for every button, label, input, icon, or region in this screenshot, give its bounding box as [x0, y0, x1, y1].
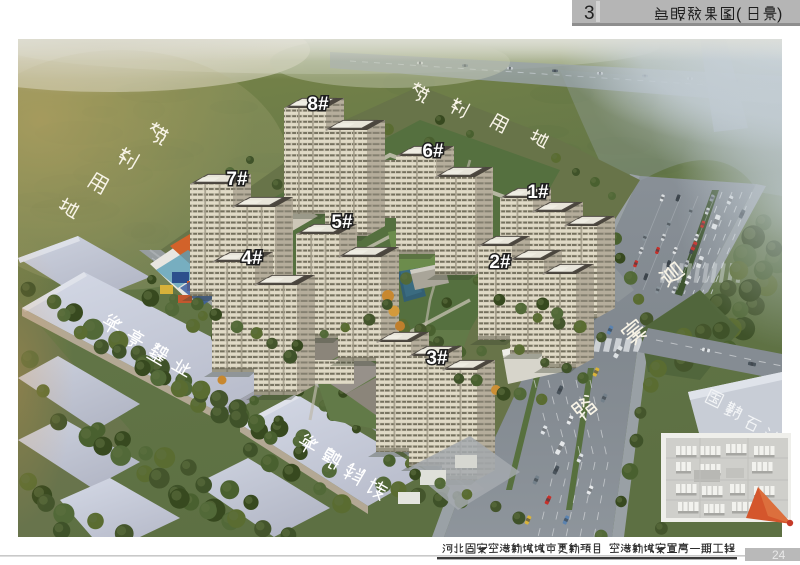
svg-text:(: (: [736, 6, 742, 23]
svg-text:7#: 7#: [226, 169, 248, 190]
svg-text:1#: 1#: [527, 182, 549, 203]
svg-text:4#: 4#: [241, 248, 263, 269]
svg-text:5#: 5#: [331, 212, 353, 233]
svg-text:8#: 8#: [307, 94, 329, 115]
svg-text:24: 24: [772, 548, 786, 562]
svg-text:3: 3: [584, 3, 595, 24]
svg-text:2#: 2#: [489, 252, 511, 273]
svg-text:): ): [777, 6, 782, 23]
svg-text:3#: 3#: [426, 348, 448, 369]
svg-text:6#: 6#: [422, 141, 444, 162]
